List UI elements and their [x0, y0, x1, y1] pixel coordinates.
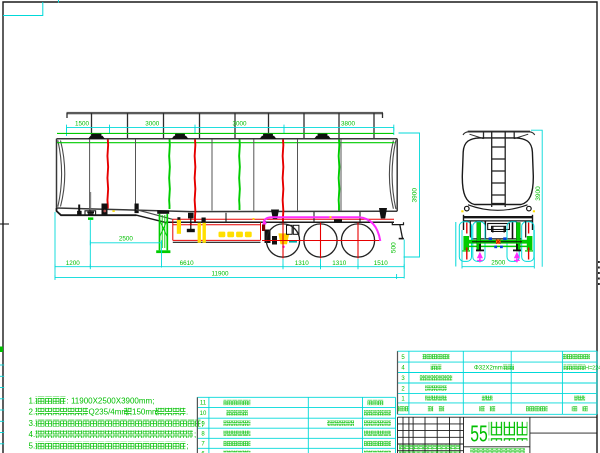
svg-text:1310: 1310: [295, 260, 310, 267]
svg-text:10: 10: [200, 411, 207, 417]
svg-text:1500: 1500: [75, 120, 90, 127]
svg-text:150mm: 150mm: [132, 408, 159, 417]
svg-text:: 11900X2500X3900mm;: : 11900X2500X3900mm;: [67, 396, 155, 405]
svg-text:3000: 3000: [145, 120, 160, 127]
svg-text:2500: 2500: [119, 236, 134, 243]
svg-text:3800: 3800: [341, 120, 356, 127]
svg-text:;: ;: [194, 430, 196, 439]
svg-text:3900: 3900: [412, 188, 419, 203]
svg-text:.: .: [186, 408, 188, 417]
svg-text:1.: 1.: [29, 396, 36, 405]
svg-text:55: 55: [470, 421, 488, 447]
svg-text:2500: 2500: [491, 259, 506, 266]
svg-text:3000: 3000: [232, 120, 247, 127]
svg-text:11900: 11900: [211, 271, 229, 278]
svg-text:2.: 2.: [29, 408, 36, 417]
svg-text:5.: 5.: [29, 442, 36, 451]
svg-text:1510: 1510: [374, 260, 389, 267]
svg-text:500: 500: [391, 242, 398, 253]
svg-text:1310: 1310: [332, 260, 347, 267]
svg-text:Φ32X2mm: Φ32X2mm: [474, 366, 503, 372]
svg-text:H=2246: H=2246: [585, 366, 600, 372]
svg-text:6610: 6610: [180, 260, 195, 267]
svg-text:Q235/4mm: Q235/4mm: [89, 408, 129, 417]
svg-text:11: 11: [200, 401, 207, 407]
svg-text:4.: 4.: [29, 430, 36, 439]
svg-text:1200: 1200: [66, 260, 81, 267]
svg-text:;: ;: [187, 442, 189, 451]
svg-text:3.: 3.: [29, 419, 36, 428]
svg-text:3900: 3900: [535, 186, 542, 201]
